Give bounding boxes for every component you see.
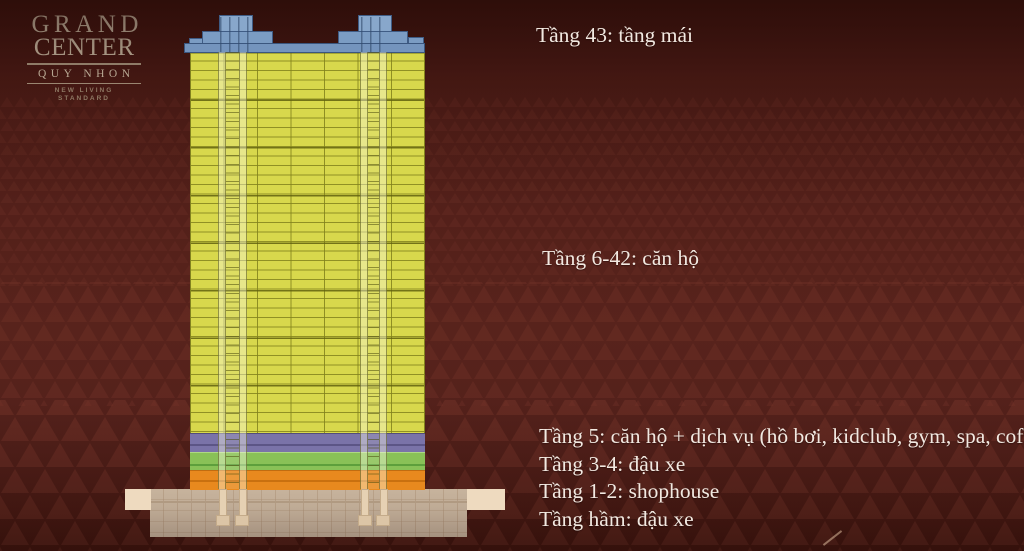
roof-core-lines-left bbox=[220, 17, 250, 52]
label-basement: Tầng hầm: đậu xe bbox=[539, 506, 1024, 534]
lift-shaft bbox=[239, 52, 247, 489]
core-ladder bbox=[368, 52, 379, 489]
logo-divider-top bbox=[27, 63, 141, 65]
elevator-core-right bbox=[360, 52, 387, 489]
podium-wing-left bbox=[125, 489, 151, 510]
logo-title-line2: CENTER bbox=[27, 36, 141, 59]
label-floor-6-42: Tầng 6-42: căn hộ bbox=[542, 246, 699, 271]
label-floor-1-2: Tầng 1-2: shophouse bbox=[539, 478, 1024, 506]
basement-podium bbox=[150, 489, 467, 537]
brand-logo: GRAND CENTER QUY NHON NEW LIVING STANDAR… bbox=[27, 13, 141, 103]
roof-core-lines-right bbox=[361, 17, 387, 52]
label-floor-43: Tầng 43: tầng mái bbox=[536, 23, 693, 48]
label-floor-5: Tầng 5: căn hộ + dịch vụ (hồ bơi, kidclu… bbox=[539, 423, 1024, 451]
lift-shaft bbox=[379, 52, 387, 489]
slide-canvas: GRAND CENTER QUY NHON NEW LIVING STANDAR… bbox=[0, 0, 1024, 551]
foundation-foot bbox=[358, 515, 372, 526]
label-lower-floors-block: Tầng 5: căn hộ + dịch vụ (hồ bơi, kidclu… bbox=[539, 423, 1024, 533]
core-ladder bbox=[226, 52, 239, 489]
lift-shaft bbox=[218, 52, 226, 489]
elevator-core-left bbox=[218, 52, 247, 489]
lift-shaft bbox=[360, 52, 368, 489]
logo-tagline: NEW LIVING STANDARD bbox=[27, 87, 141, 103]
logo-divider-bottom bbox=[27, 83, 141, 84]
label-floor-3-4: Tầng 3-4: đậu xe bbox=[539, 451, 1024, 479]
foundation-foot bbox=[376, 515, 390, 526]
foundation-foot bbox=[216, 515, 230, 526]
foundation-foot bbox=[235, 515, 249, 526]
logo-subtitle: QUY NHON bbox=[27, 68, 141, 80]
podium-wing-right bbox=[467, 489, 505, 510]
logo-title-line1: GRAND bbox=[27, 13, 141, 36]
